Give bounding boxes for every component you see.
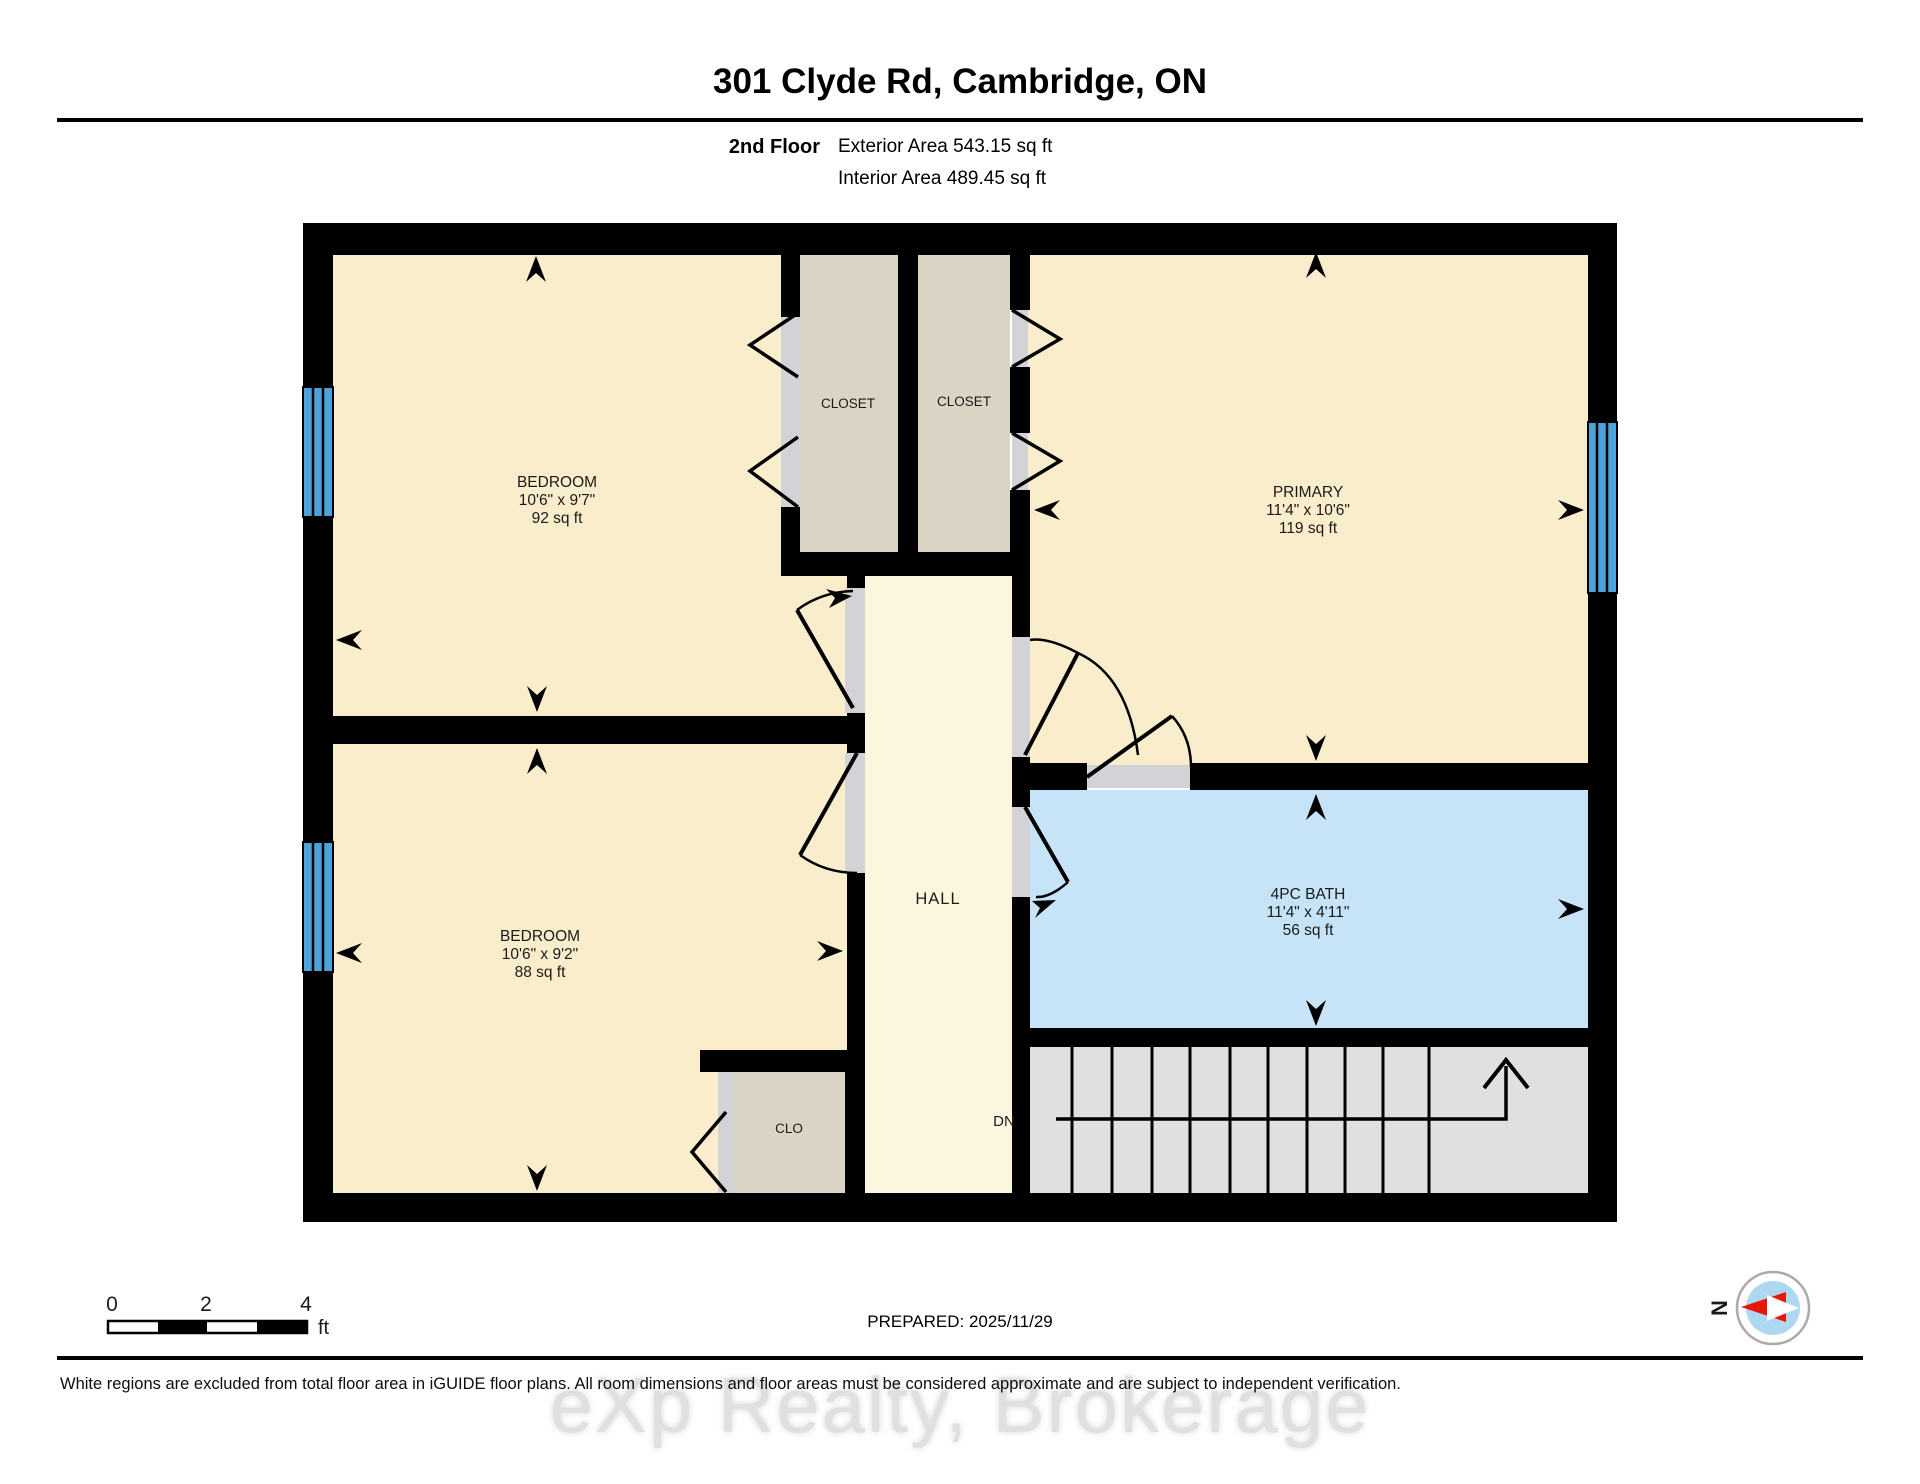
bedroom-bottom-name: BEDROOM — [500, 928, 580, 945]
floor-plan: BEDROOM 10'6" x 9'7" 92 sq ft PRIMARY 11… — [0, 0, 1920, 1484]
footer-divider — [57, 1356, 1863, 1360]
window-bedroom-bottom — [303, 842, 333, 972]
wall-bath-top-a — [1012, 763, 1087, 790]
bedroom-top-door-opening — [845, 588, 865, 713]
wall-outer-top — [303, 223, 1617, 255]
disclaimer-text: White regions are excluded from total fl… — [60, 1375, 1560, 1394]
wall-bath-bottom — [1030, 1028, 1588, 1047]
bedroom-top-name: BEDROOM — [517, 474, 597, 491]
wall-hall-right-c — [1012, 897, 1030, 1193]
clo-label: CLO — [775, 1121, 803, 1136]
bedroom-bottom-area: 88 sq ft — [515, 964, 567, 981]
bath-dims: 11'4" x 4'11" — [1267, 904, 1350, 921]
wall-bedroom-divider — [333, 716, 865, 744]
wall-outer-bottom — [303, 1193, 1617, 1222]
prepared-date: PREPARED: 2025/11/29 — [0, 1312, 1920, 1332]
wall-bath-top-b — [1190, 763, 1588, 790]
bath-door-opening — [1012, 807, 1030, 897]
closet-right-label: CLOSET — [937, 394, 991, 409]
hall-label: HALL — [915, 890, 960, 908]
wall-between-closets — [898, 255, 918, 552]
wall-outer-left — [303, 223, 333, 1222]
wall-hall-right-a — [1012, 576, 1030, 637]
wall-closet-right-a — [1010, 255, 1030, 310]
wall-outer-right — [1588, 223, 1617, 1222]
compass: N — [1707, 1272, 1809, 1344]
closet-left-bifold-opening — [781, 317, 800, 507]
window-primary — [1588, 422, 1617, 593]
closet-left-label: CLOSET — [821, 396, 875, 411]
primary-name: PRIMARY — [1273, 484, 1343, 501]
wall-hall-left-a — [847, 576, 865, 588]
wall-hall-left-b — [847, 713, 865, 753]
bath-name: 4PC BATH — [1271, 886, 1346, 903]
primary-bath-door-opening — [1087, 765, 1190, 788]
bedroom-top-area: 92 sq ft — [532, 510, 584, 527]
stairs-dn-label: DN — [993, 1113, 1015, 1130]
primary-area: 119 sq ft — [1279, 520, 1338, 537]
primary-dims: 11'4" x 10'6" — [1266, 502, 1350, 519]
clo-bifold-opening — [718, 1072, 734, 1193]
bedroom-top-dims: 10'6" x 9'7" — [519, 492, 595, 509]
wall-closet-bottom — [781, 552, 1030, 576]
wall-closet-left-a — [781, 255, 800, 317]
wall-clo-right — [845, 1072, 865, 1193]
primary-door-opening — [1012, 637, 1030, 757]
wall-closet-right-c — [1010, 490, 1030, 552]
window-bedroom-top — [303, 387, 333, 517]
wall-closet-right-b — [1010, 367, 1030, 433]
bath-area: 56 sq ft — [1283, 922, 1335, 939]
hall-floor — [865, 576, 1012, 1195]
wall-clo-top — [700, 1050, 865, 1072]
wall-hall-left-c — [847, 873, 865, 1052]
bedroom-bottom-dims: 10'6" x 9'2" — [502, 946, 578, 963]
